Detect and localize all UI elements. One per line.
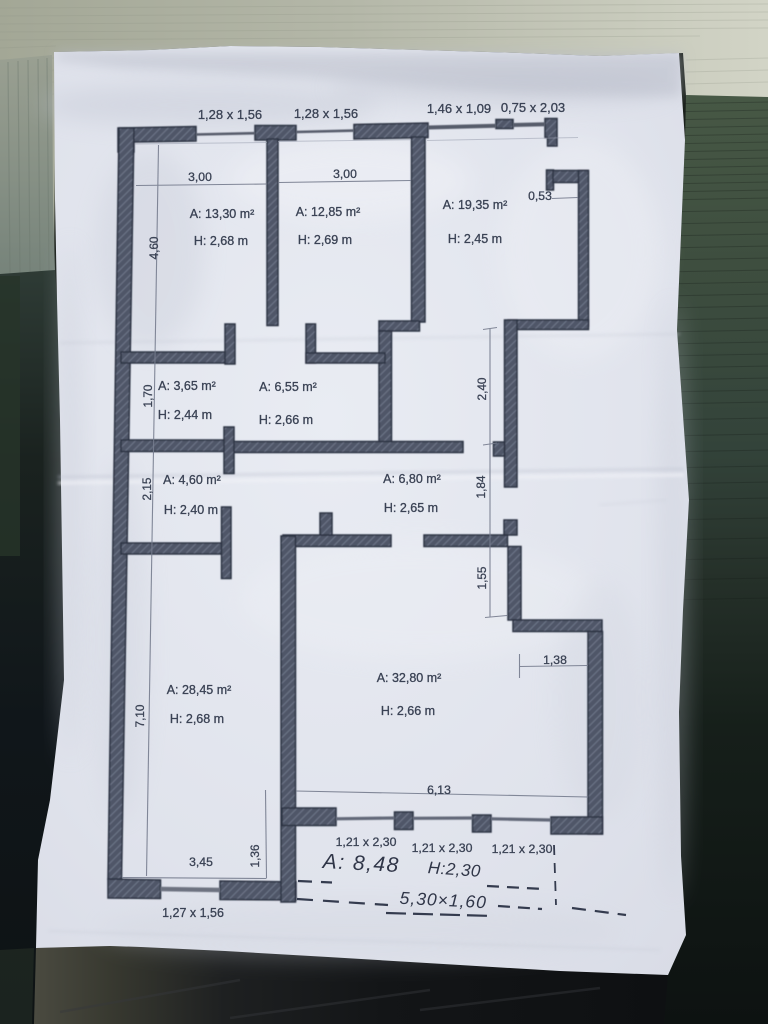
svg-text:H: 2,45 m: H: 2,45 m (448, 232, 502, 246)
svg-text:H: 2,68 m: H: 2,68 m (194, 234, 248, 248)
svg-text:H:2,30: H:2,30 (427, 858, 481, 881)
svg-text:1,70: 1,70 (141, 384, 155, 407)
svg-text:A: 6,80 m²: A: 6,80 m² (383, 472, 441, 486)
svg-text:H: 2,66 m: H: 2,66 m (381, 704, 435, 718)
svg-text:3,00: 3,00 (188, 170, 212, 184)
svg-text:A: 28,45 m²: A: 28,45 m² (167, 683, 232, 697)
svg-text:H: 2,40 m: H: 2,40 m (164, 503, 218, 517)
svg-text:H: 2,68 m: H: 2,68 m (170, 712, 224, 726)
svg-text:1,38: 1,38 (543, 653, 567, 667)
svg-text:A: 19,35 m²: A: 19,35 m² (443, 198, 508, 212)
svg-text:A: 12,85 m²: A: 12,85 m² (296, 205, 361, 219)
svg-text:H: 2,65 m: H: 2,65 m (384, 501, 438, 515)
svg-text:2,40: 2,40 (475, 377, 489, 400)
svg-text:A: 8,48: A: 8,48 (320, 850, 400, 877)
svg-text:H: 2,66 m: H: 2,66 m (259, 413, 313, 427)
svg-text:H: 2,69 m: H: 2,69 m (298, 233, 352, 247)
svg-text:1,55: 1,55 (475, 566, 489, 589)
svg-text:A: 32,80 m²: A: 32,80 m² (377, 671, 442, 685)
svg-text:2,15: 2,15 (140, 477, 154, 500)
svg-text:1,21 x 2,30: 1,21 x 2,30 (336, 835, 397, 849)
svg-text:1,21 x 2,30: 1,21 x 2,30 (412, 841, 473, 855)
svg-text:A: 3,65 m²: A: 3,65 m² (158, 379, 216, 393)
svg-text:1,21 x 2,30: 1,21 x 2,30 (492, 842, 553, 856)
svg-text:7,10: 7,10 (133, 704, 147, 727)
svg-text:A: 4,60 m²: A: 4,60 m² (163, 473, 221, 487)
svg-text:1,46 x 1,09: 1,46 x 1,09 (427, 101, 491, 116)
svg-text:1,28 x 1,56: 1,28 x 1,56 (198, 107, 262, 122)
svg-text:1,27 x 1,56: 1,27 x 1,56 (162, 906, 224, 920)
svg-text:6,13: 6,13 (427, 783, 451, 797)
svg-text:H: 2,44 m: H: 2,44 m (158, 408, 212, 422)
svg-text:0,53: 0,53 (528, 189, 552, 203)
svg-text:1,84: 1,84 (474, 475, 488, 498)
svg-text:A: 13,30 m²: A: 13,30 m² (190, 207, 255, 221)
svg-text:3,45: 3,45 (189, 855, 213, 869)
svg-text:3,00: 3,00 (333, 167, 357, 181)
svg-text:0,75 x 2,03: 0,75 x 2,03 (501, 100, 565, 115)
svg-text:1,28 x 1,56: 1,28 x 1,56 (294, 106, 358, 121)
svg-text:1,36: 1,36 (248, 844, 262, 867)
svg-text:A: 6,55 m²: A: 6,55 m² (259, 380, 317, 394)
svg-text:4,60: 4,60 (147, 236, 161, 259)
